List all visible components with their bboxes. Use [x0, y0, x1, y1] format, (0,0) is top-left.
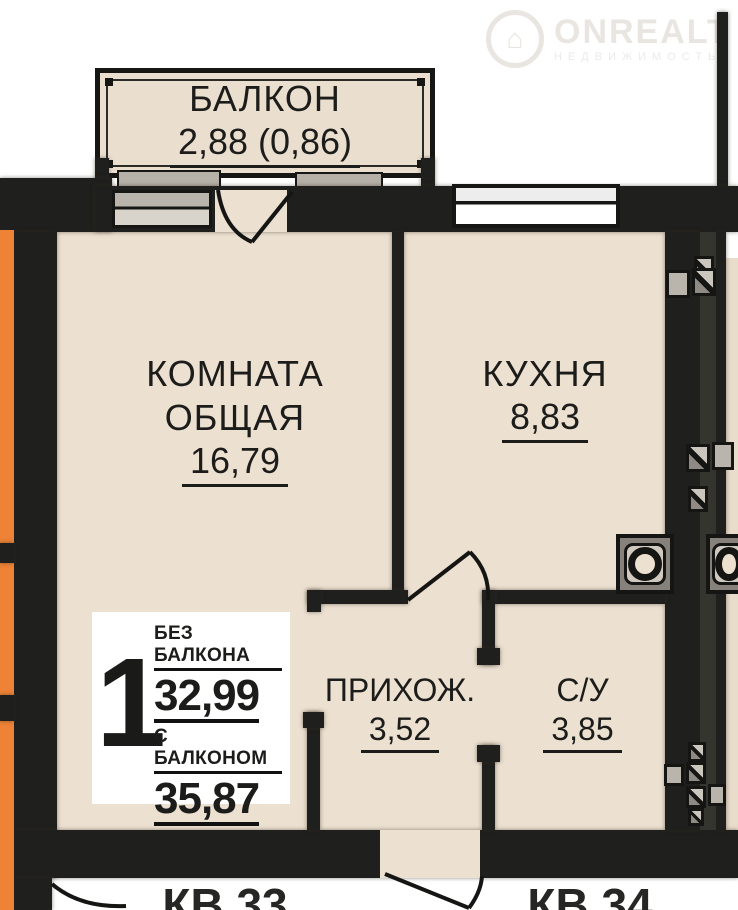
- vent-shaft: [700, 232, 716, 830]
- orange-strip-gap: [0, 543, 14, 563]
- area-summary-values: БЕЗ БАЛКОНА 32,99 С БАЛКОНОМ 35,87: [154, 620, 282, 796]
- with-balcony-label: С БАЛКОНОМ: [154, 726, 282, 774]
- wall-room-kitchen: [392, 232, 404, 592]
- vent-icon: [688, 742, 706, 762]
- living-room-window: [112, 190, 212, 228]
- plumbing-riser-icon: [616, 534, 674, 594]
- wall-bottom: [0, 830, 738, 878]
- wall-top-right-bar: [717, 12, 728, 186]
- vent-icon: [686, 444, 710, 472]
- orange-strip: [0, 230, 14, 910]
- floor-plan: ⌂ ONREALT НЕДВИЖИМОСТЬ БАЛКОН 2,88 (0,86…: [0, 0, 738, 910]
- living-room-name-line1: КОМНАТА: [110, 352, 360, 396]
- vent-icon: [688, 808, 704, 826]
- wall-room-bottom: [307, 590, 408, 604]
- balcony-door-arc-icon: [212, 188, 296, 248]
- hallway-name: ПРИХОЖ.: [300, 670, 500, 710]
- wall-right-outer: [716, 232, 726, 830]
- bathroom-name: С/У: [500, 670, 665, 710]
- vent-icon: [664, 764, 684, 786]
- wall-room-bottom-stub: [307, 590, 321, 612]
- with-balcony-area: 35,87: [154, 777, 259, 826]
- watermark-brand: ONREALT: [554, 15, 730, 49]
- balcony-post-right: [421, 158, 435, 188]
- vent-icon: [666, 270, 690, 298]
- wall-left: [14, 232, 57, 878]
- kitchen-door-arc-icon: [404, 544, 492, 606]
- hallway-area: 3,52: [361, 710, 439, 753]
- house-icon: ⌂: [486, 10, 544, 68]
- balcony-labels: БАЛКОН 2,88 (0,86): [100, 77, 430, 168]
- watermark-tagline: НЕДВИЖИМОСТЬ: [554, 51, 730, 63]
- watermark-text: ONREALT НЕДВИЖИМОСТЬ: [554, 15, 730, 63]
- hallway-label-block: ПРИХОЖ. 3,52: [300, 670, 500, 753]
- watermark-logo: ⌂ ONREALT НЕДВИЖИМОСТЬ: [486, 10, 730, 68]
- living-room-area: 16,79: [182, 440, 288, 487]
- wall-hall-bath-jamb-top: [477, 648, 500, 665]
- entrance-door-arc-icon: [375, 874, 485, 910]
- balcony-area: 2,88 (0,86): [170, 121, 360, 168]
- vent-icon: [712, 442, 734, 470]
- vent-icon: [692, 268, 716, 296]
- living-room-label-block: КОМНАТА ОБЩАЯ 16,79: [110, 352, 360, 487]
- unit-33-label: КВ.33: [115, 882, 335, 910]
- vent-icon: [688, 486, 708, 512]
- balcony-label: БАЛКОН: [100, 77, 430, 121]
- kitchen-name: КУХНЯ: [440, 352, 650, 396]
- without-balcony-label: БЕЗ БАЛКОНА: [154, 623, 282, 671]
- without-balcony-area: 32,99: [154, 674, 259, 723]
- entrance-opening: [380, 830, 480, 878]
- wall-right: [665, 232, 700, 830]
- area-summary-box: 1 БЕЗ БАЛКОНА 32,99 С БАЛКОНОМ 35,87: [92, 612, 290, 804]
- balcony: БАЛКОН 2,88 (0,86): [95, 68, 435, 178]
- vent-icon: [686, 786, 706, 808]
- wall-bottom-left-chunk: [14, 878, 52, 910]
- living-room-name-line2: ОБЩАЯ: [110, 396, 360, 440]
- plumbing-riser-icon: [706, 534, 738, 594]
- vent-icon: [708, 784, 726, 806]
- house-icon-glyph: ⌂: [507, 23, 524, 55]
- bathroom-label-block: С/У 3,85: [500, 670, 665, 753]
- vent-icon: [686, 762, 706, 784]
- kitchen-area: 8,83: [502, 396, 588, 443]
- kitchen-label-block: КУХНЯ 8,83: [440, 352, 650, 443]
- kitchen-window: [452, 184, 620, 228]
- unit-34-label: КВ.34: [475, 882, 705, 910]
- bathroom-area: 3,85: [543, 710, 621, 753]
- room-count: 1: [96, 654, 154, 796]
- orange-strip-gap: [0, 695, 14, 721]
